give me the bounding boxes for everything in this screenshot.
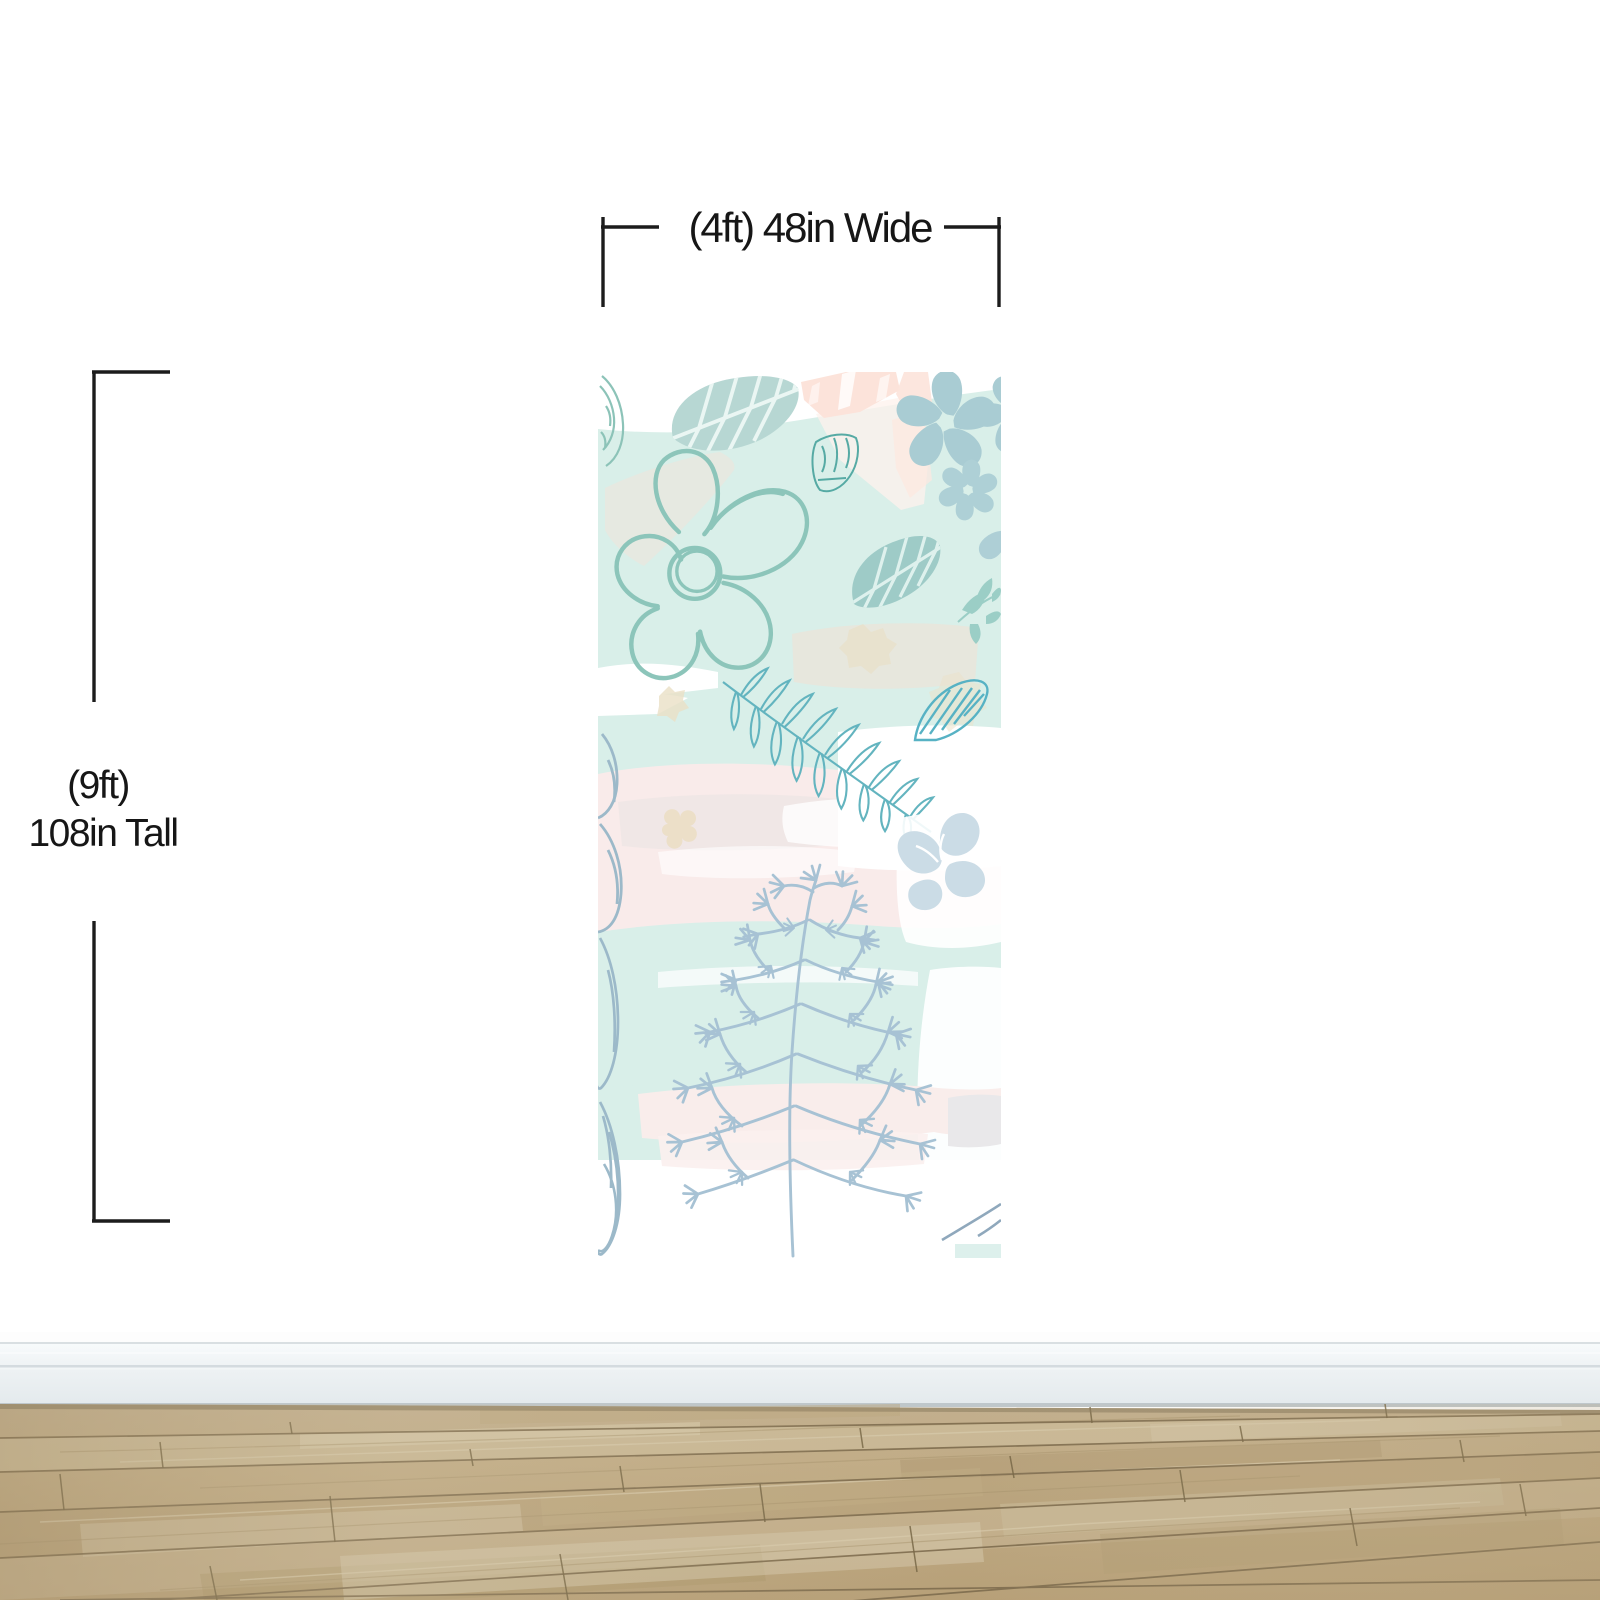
svg-text:(9ft): (9ft) [67, 764, 129, 807]
svg-text:(4ft) 48in Wide: (4ft) 48in Wide [688, 204, 932, 251]
svg-text:108in Tall: 108in Tall [28, 812, 177, 855]
